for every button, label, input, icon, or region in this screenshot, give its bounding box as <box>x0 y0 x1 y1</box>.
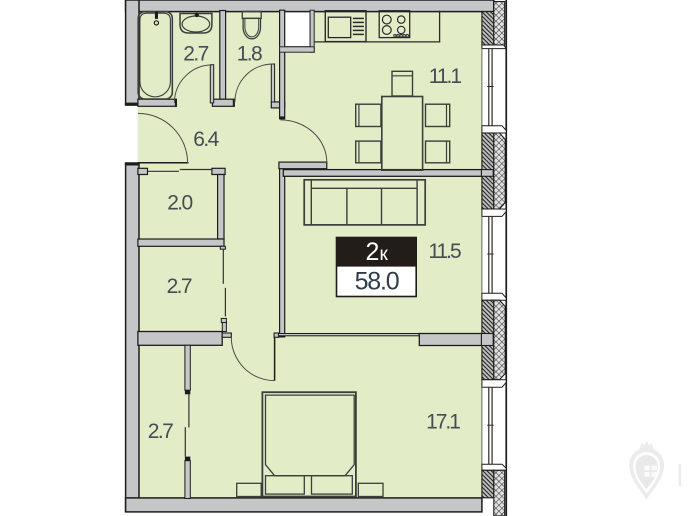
svg-text:2.7: 2.7 <box>167 275 192 298</box>
svg-text:6.4: 6.4 <box>193 128 219 151</box>
svg-text:2.0: 2.0 <box>167 191 192 214</box>
svg-text:2.7: 2.7 <box>148 420 173 443</box>
svg-text:17.1: 17.1 <box>426 410 460 433</box>
svg-text:2.7: 2.7 <box>183 42 208 65</box>
svg-text:1.8: 1.8 <box>237 42 262 65</box>
svg-text:11.1: 11.1 <box>429 65 462 88</box>
svg-text:к: к <box>380 244 389 265</box>
svg-text:58.0: 58.0 <box>355 268 399 296</box>
svg-text:2: 2 <box>366 238 380 266</box>
svg-text:11.5: 11.5 <box>428 240 461 263</box>
